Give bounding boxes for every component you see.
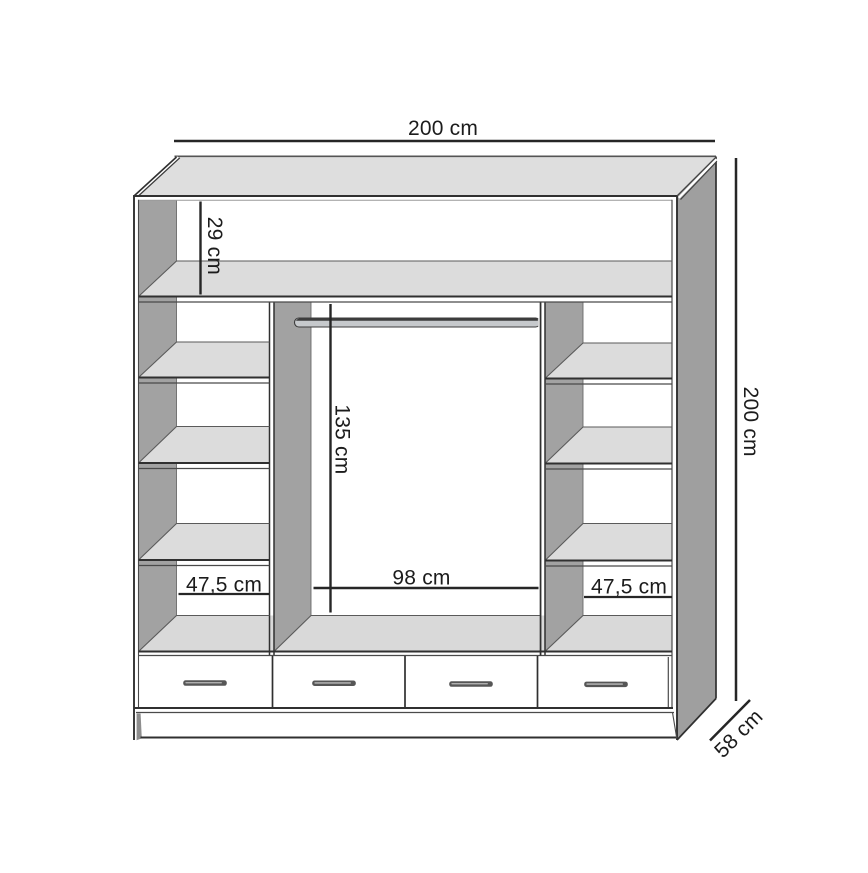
svg-text:200 cm: 200 cm <box>408 117 478 140</box>
svg-text:29 cm: 29 cm <box>203 217 226 275</box>
svg-text:135 cm: 135 cm <box>330 404 353 474</box>
svg-text:47,5 cm: 47,5 cm <box>186 573 262 596</box>
svg-text:47,5 cm: 47,5 cm <box>591 576 667 599</box>
svg-text:98 cm: 98 cm <box>392 567 450 590</box>
svg-text:200 cm: 200 cm <box>739 387 762 457</box>
